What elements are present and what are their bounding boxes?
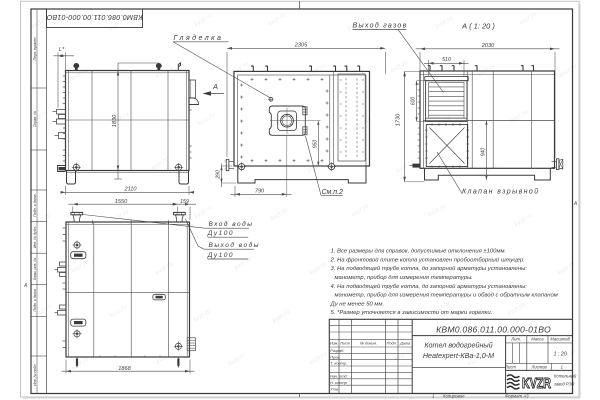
svg-text:А: А (212, 82, 218, 91)
svg-text:Лит.: Лит. (510, 337, 521, 342)
svg-text:1730: 1730 (395, 113, 401, 126)
svg-text:Выход газов: Выход газов (353, 22, 408, 30)
svg-text:159: 159 (180, 199, 189, 205)
svg-text:Подп. и дата: Подп. и дата (33, 194, 37, 217)
svg-text:1: 1 (561, 365, 563, 370)
svg-text:См.п.2: См.п.2 (322, 189, 344, 196)
svg-text:Взам. инв. №: Взам. инв. № (33, 258, 37, 280)
svg-text:1830: 1830 (112, 114, 118, 127)
svg-text:1868: 1868 (118, 366, 131, 372)
svg-text:Нач. отд.: Нач. отд. (330, 373, 347, 378)
svg-text:Гляделка: Гляделка (174, 34, 224, 42)
svg-text:Подп. и дата: Подп. и дата (33, 289, 37, 312)
svg-text:КВМ0.086.011.00.000-01ВО: КВМ0.086.011.00.000-01ВО (46, 13, 142, 22)
svg-text:Лист: Лист (504, 365, 516, 370)
svg-text:Т. контр.: Т. контр. (330, 361, 347, 366)
svg-text:завод РЭП: завод РЭП (553, 382, 574, 387)
svg-text:Перв. примен.: Перв. примен. (33, 37, 37, 61)
svg-text:Разраб.: Разраб. (330, 348, 344, 353)
svg-text:1. Все размеры для справок, до: 1. Все размеры для справок, допустимые о… (331, 249, 507, 255)
svg-text:Инв. № подл.: Инв. № подл. (33, 364, 37, 386)
svg-text:№ докум.: № докум. (360, 341, 377, 346)
svg-text:Формат А3: Формат А3 (505, 393, 529, 398)
svg-text:Справ. №: Справ. № (33, 111, 37, 127)
svg-text:1550: 1550 (115, 199, 128, 205)
svg-text:Выход воды: Выход воды (209, 241, 261, 249)
svg-text:2030: 2030 (481, 43, 495, 49)
svg-text:950: 950 (312, 140, 318, 149)
svg-text:Heatexpert-КВа-1,0-М: Heatexpert-КВа-1,0-М (423, 351, 494, 360)
svg-text:Утв.: Утв. (330, 387, 339, 392)
svg-text:Пров.: Пров. (330, 354, 340, 359)
svg-text:Котел водогрейный: Котел водогрейный (424, 341, 492, 350)
svg-text:600: 600 (411, 97, 417, 106)
svg-text:5. *Размер уточняется в зависи: 5. *Размер уточняется в зависимости от м… (331, 310, 493, 316)
svg-text:А ( 1: 20 ): А ( 1: 20 ) (461, 22, 495, 31)
svg-text:790: 790 (255, 188, 265, 194)
svg-text:2. На фронтовой плите котла ус: 2. На фронтовой плите котла установлен п… (330, 256, 525, 263)
svg-text:Дата: Дата (399, 341, 411, 346)
svg-text:Изм.: Изм. (330, 341, 338, 346)
svg-text:Ду не менее 50 мм.: Ду не менее 50 мм. (330, 301, 385, 307)
svg-text:2305: 2305 (294, 42, 308, 48)
svg-text:Ду100: Ду100 (207, 252, 234, 259)
svg-text:3. На подводящей трубе котла,: 3. На подводящей трубе котла, до запорно… (331, 265, 528, 272)
svg-text:2110: 2110 (123, 187, 137, 193)
svg-text:Копировал: Копировал (443, 393, 465, 398)
svg-text:4. На подводящей трубе котла,: 4. На подводящей трубе котла, до запорно… (331, 283, 528, 290)
svg-text:L*: L* (59, 47, 65, 53)
svg-text:А: А (23, 283, 28, 289)
svg-text:манометр, прибор для измерения: манометр, прибор для измерения температу… (335, 293, 558, 299)
svg-text:Котельный: Котельный (554, 374, 577, 379)
svg-text:290: 290 (216, 170, 222, 180)
svg-text:Листов: Листов (530, 365, 547, 370)
svg-text:Н. контр.: Н. контр. (330, 380, 348, 385)
svg-text:Вход воды: Вход воды (209, 220, 254, 228)
svg-text:KVZR: KVZR (522, 375, 551, 392)
svg-text:манометр, прибор для измерения: манометр, прибор для измерения температу… (335, 275, 473, 281)
svg-text:КВМ0.086.011.00.000-01ВО: КВМ0.086.011.00.000-01ВО (436, 325, 551, 335)
svg-text:940: 940 (481, 148, 487, 157)
svg-text:А: А (573, 201, 578, 207)
svg-text:510: 510 (442, 57, 451, 63)
svg-text:Ду100: Ду100 (207, 230, 234, 237)
svg-text:1 : 20: 1 : 20 (553, 352, 567, 358)
svg-text:Инв. № дубл.: Инв. № дубл. (33, 226, 37, 248)
svg-text:Подп.: Подп. (387, 341, 397, 346)
svg-text:Лист: Лист (339, 341, 351, 346)
svg-text:Клапан взрывной: Клапан взрывной (462, 188, 540, 196)
svg-text:Масса: Масса (531, 337, 544, 342)
svg-text:Масштаб: Масштаб (550, 337, 570, 342)
